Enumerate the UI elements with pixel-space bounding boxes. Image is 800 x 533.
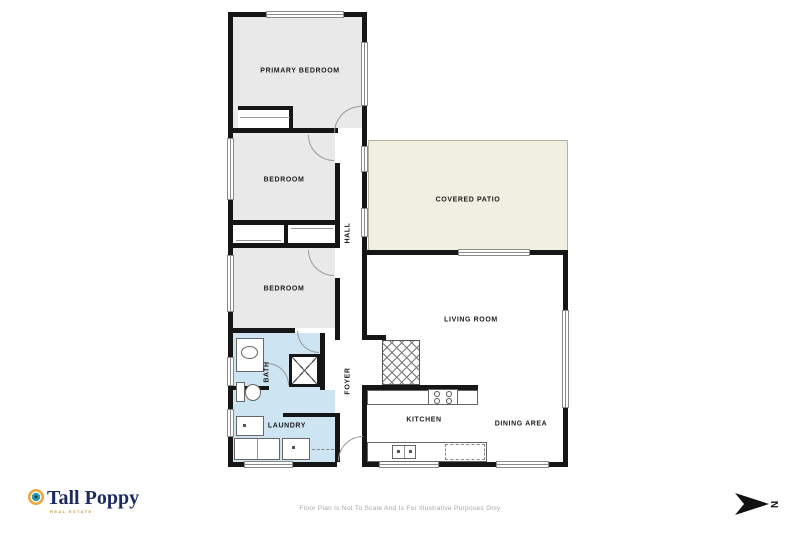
laundry-cabinet — [236, 416, 264, 436]
disclaimer-text: Floor Plan Is Not To Scale And Is For Il… — [299, 505, 500, 512]
kitchen-counter-top — [367, 390, 478, 405]
north-label: N — [768, 501, 779, 508]
label-kitchen: KITCHEN — [406, 417, 441, 424]
label-bedroom-3: BEDROOM — [264, 286, 305, 293]
stove-burner — [446, 391, 452, 397]
label-covered-patio: COVERED PATIO — [436, 197, 501, 204]
floor-plan-page: PRIMARY BEDROOM BEDROOM BEDROOM HALL COV… — [0, 0, 800, 533]
window-bath-left — [227, 357, 234, 386]
window-bedroom3-left — [227, 255, 234, 312]
washer-knob — [292, 446, 295, 449]
shower — [289, 354, 320, 387]
label-foyer: FOYER — [345, 367, 352, 394]
wall-laundry-step — [283, 413, 340, 417]
label-bedroom-2: BEDROOM — [264, 177, 305, 184]
window-bedroom2-left — [227, 138, 234, 200]
closet-primary-slider — [240, 117, 290, 118]
toilet-bowl — [245, 384, 261, 401]
window-patio-hall-1 — [361, 146, 368, 172]
dishwasher — [445, 444, 485, 460]
stove-burner — [446, 398, 452, 404]
fireplace — [382, 340, 420, 385]
stove-burner — [434, 398, 440, 404]
north-arrow-icon — [735, 493, 769, 515]
wall-living-west — [362, 255, 367, 337]
label-hall: HALL — [345, 222, 352, 243]
closet-right-slider — [291, 228, 333, 229]
washer — [282, 438, 310, 460]
window-dining-right — [562, 310, 569, 408]
brand-tagline: REAL ESTATE — [50, 509, 93, 514]
kitchen-sink-divider — [404, 446, 405, 458]
window-kitchen-bottom — [379, 461, 439, 468]
stove — [428, 389, 458, 405]
window-laundry-bottom — [244, 461, 293, 468]
label-primary-bedroom: PRIMARY BEDROOM — [260, 68, 339, 75]
closet-left-slider — [236, 240, 281, 241]
sliding-door-patio — [458, 249, 530, 256]
wall-closet-bottom — [228, 243, 340, 248]
label-bath: BATH — [264, 361, 271, 382]
window-dining-bottom — [496, 461, 549, 468]
label-dining-area: DINING AREA — [495, 421, 548, 428]
window-laundry-left — [227, 409, 234, 437]
bath-vanity-basin — [241, 346, 258, 359]
wall-bath-right — [320, 333, 325, 390]
window-primary-top — [266, 11, 344, 18]
laundry-counter-divider — [257, 439, 258, 459]
window-patio-hall-2 — [361, 208, 368, 237]
kitchen-sink-faucet — [397, 450, 400, 453]
brand-name: Tall Poppy — [47, 487, 139, 510]
toilet-tank — [236, 382, 245, 402]
window-primary-right — [361, 42, 368, 106]
wall-left — [228, 12, 233, 467]
stove-burner — [434, 391, 440, 397]
label-living-room: LIVING ROOM — [444, 317, 498, 324]
laundry-cabinet-knob — [243, 424, 246, 427]
wall-hall-left-lower — [335, 278, 340, 340]
wall-bed3-bottom — [228, 328, 295, 333]
wall-hall-left-upper — [335, 163, 340, 248]
brand-logo-icon — [28, 489, 44, 505]
label-laundry: LAUNDRY — [268, 423, 306, 430]
wall-patio-bottom-left — [362, 250, 460, 255]
door-front-entry — [338, 436, 363, 461]
wall-primary-bottom — [228, 128, 338, 133]
kitchen-sink-faucet — [409, 450, 412, 453]
washer-door-swing — [312, 449, 334, 450]
